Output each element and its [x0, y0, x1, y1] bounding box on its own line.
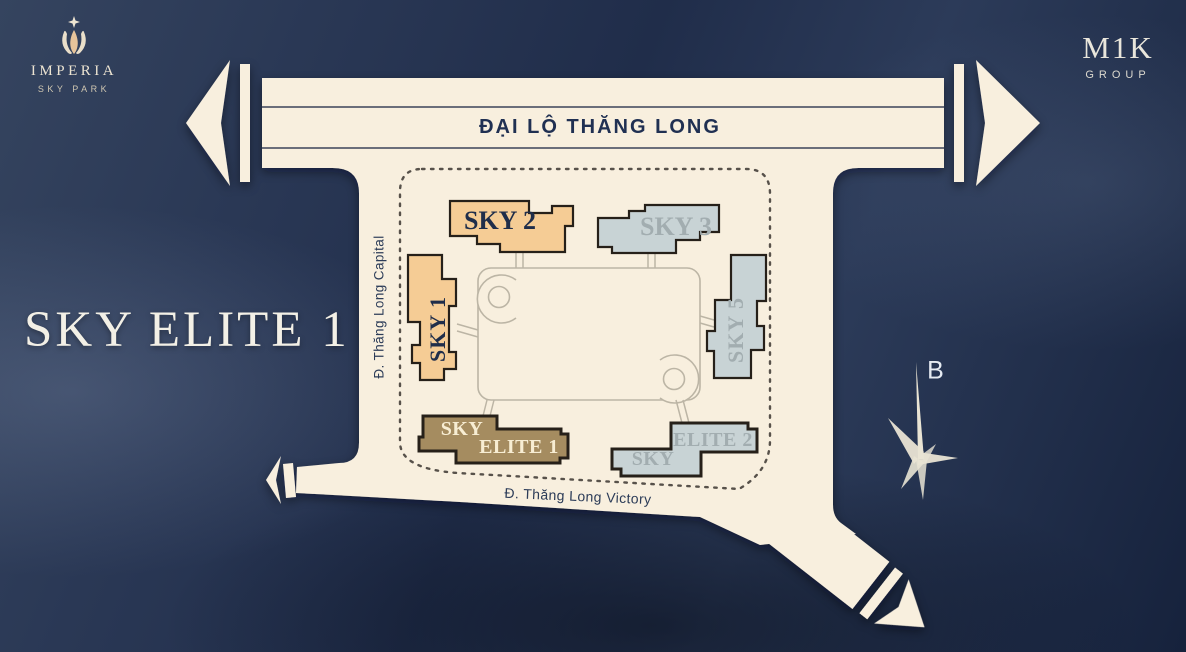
imperia-logo-subtitle: SKY PARK — [26, 84, 122, 94]
label-building-sky-2: SKY 2 — [464, 208, 536, 234]
imperia-tulip-icon — [52, 14, 96, 60]
mik-logo-name: M1K — [1068, 30, 1168, 66]
avenue-right-stripe — [954, 64, 964, 182]
south-road-arrow-left-icon — [266, 456, 281, 504]
masterplan-poster: ĐẠI LỘ THĂNG LONG Đ. Thăng Long Capital … — [0, 0, 1186, 652]
label-main-avenue: ĐẠI LỘ THĂNG LONG — [479, 117, 721, 137]
imperia-logo-name: IMPERIA — [26, 63, 122, 80]
label-building-sky-5: SKY 5 — [725, 297, 747, 363]
label-building-sky-3: SKY 3 — [640, 214, 712, 240]
label-building-sky-elite-2-bottom: ELITE 2 — [673, 430, 753, 450]
compass-north-label: B — [927, 359, 945, 384]
label-building-sky-1: SKY 1 — [427, 296, 449, 362]
imperia-logo: IMPERIA SKY PARK — [26, 14, 122, 94]
mik-logo-subtitle: GROUP — [1068, 69, 1168, 81]
mik-group-logo: M1K GROUP — [1068, 30, 1168, 81]
southeast-branch — [758, 488, 943, 651]
avenue-arrow-left-icon — [186, 60, 230, 186]
podium-footprint — [477, 268, 700, 403]
compass-rose-icon — [888, 362, 958, 500]
page-title: SKY ELITE 1 — [24, 301, 350, 359]
label-building-sky-elite-1-bottom: ELITE 1 — [479, 437, 559, 457]
label-building-sky-elite-1-top: SKY — [441, 419, 484, 439]
label-building-sky-elite-2-top: SKY — [632, 449, 675, 469]
avenue-left-stripe — [240, 64, 250, 182]
south-road-stripe-left — [283, 463, 296, 498]
label-west-street: Đ. Thăng Long Capital — [372, 235, 386, 378]
avenue-arrow-right-icon — [976, 60, 1040, 186]
